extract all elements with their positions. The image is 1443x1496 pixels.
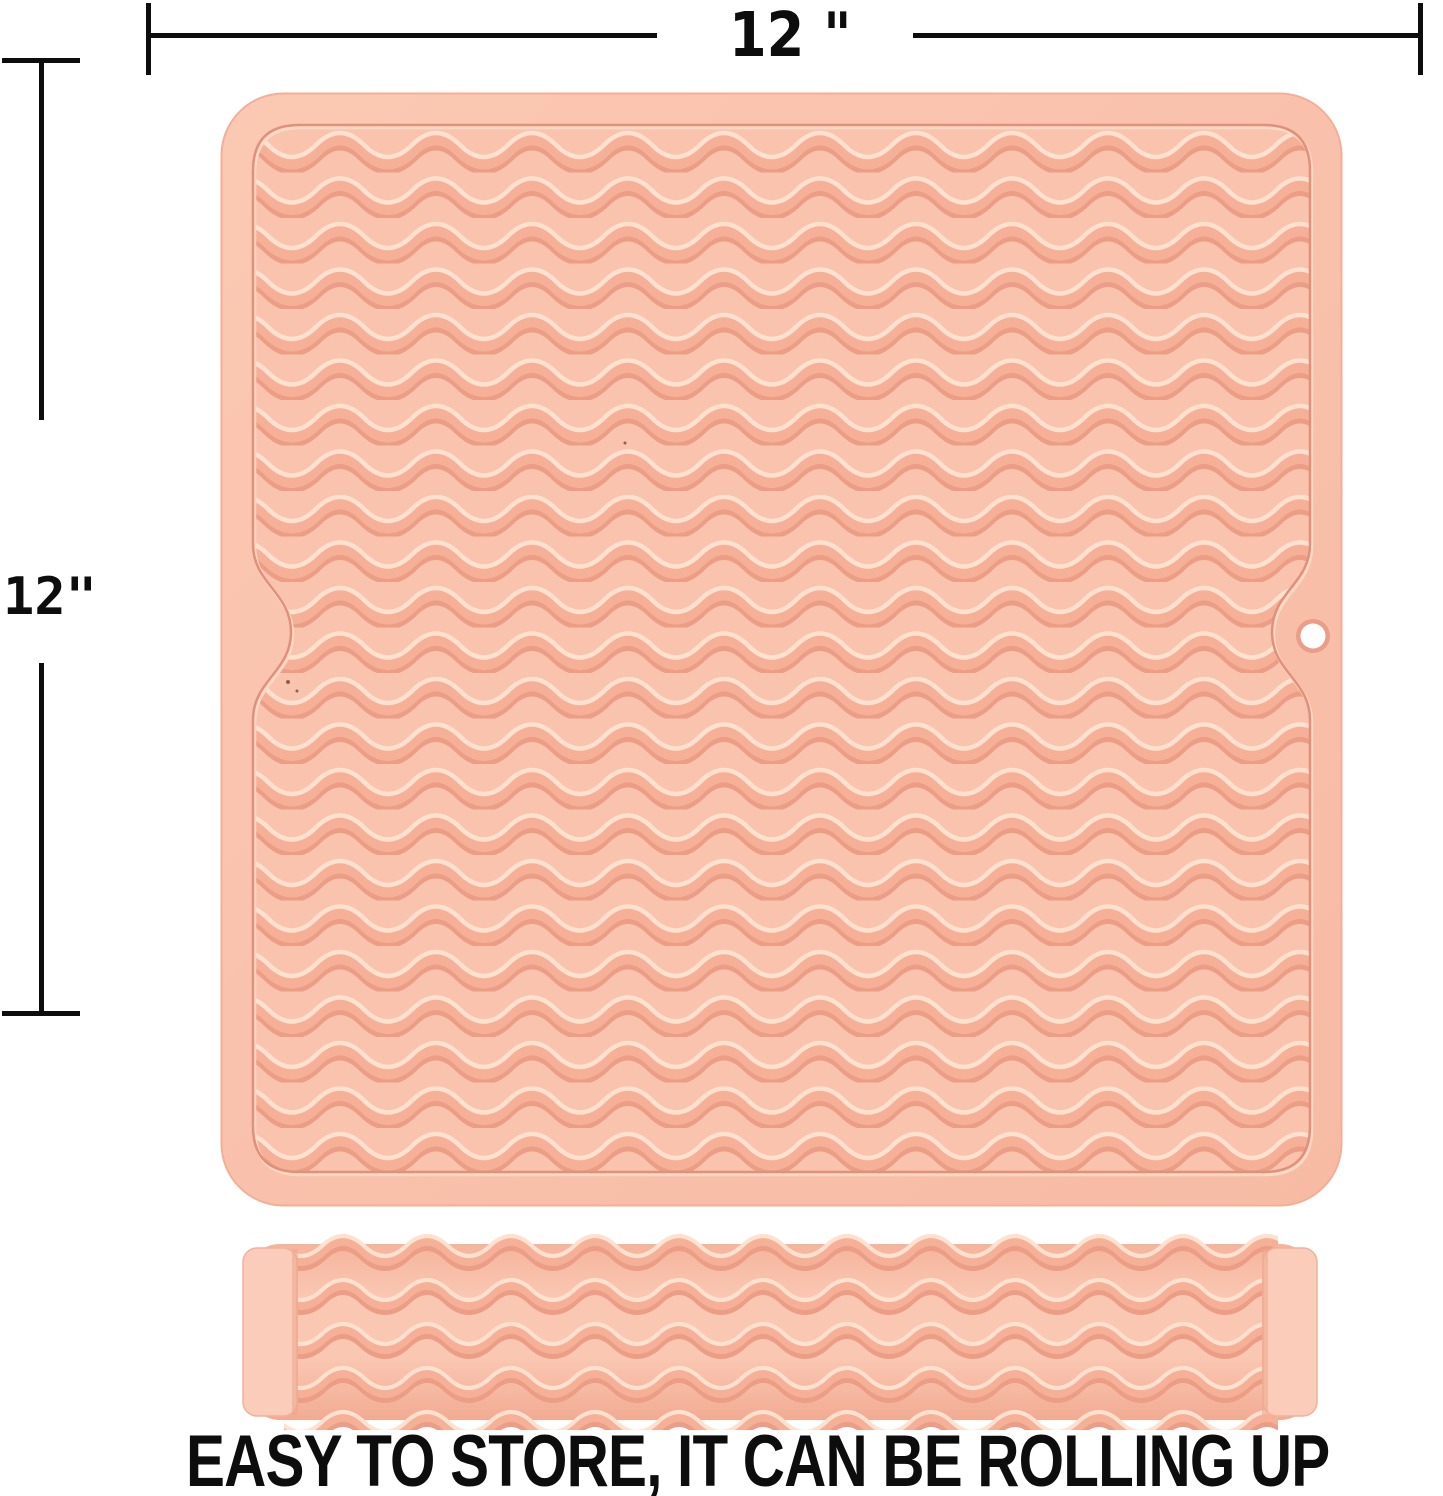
height-dimension-label: 12" xyxy=(0,566,102,628)
width-dim-line-right xyxy=(913,33,1421,38)
mat-wave-texture xyxy=(220,92,1343,1207)
drying-mat-image xyxy=(220,92,1343,1207)
height-dim-bottom-tick xyxy=(2,1011,80,1016)
width-dim-right-tick xyxy=(1418,3,1423,75)
mat-hanging-hole xyxy=(1296,619,1330,653)
product-image: 12 " 12" xyxy=(0,0,1443,1496)
roll-wave-texture xyxy=(284,1234,1278,1430)
width-dimension-label: 12 " xyxy=(729,0,843,71)
height-dim-line-top xyxy=(39,58,44,420)
caption-text: EASY TO STORE, IT CAN BE ROLLING UP xyxy=(186,1426,1329,1496)
width-dim-line-left xyxy=(149,33,657,38)
width-dim-left-tick xyxy=(146,3,151,75)
rolled-mat-image xyxy=(238,1234,1322,1430)
roll-left-end-cap xyxy=(243,1248,298,1416)
roll-right-end-cap xyxy=(1262,1248,1317,1416)
height-dim-line-bottom xyxy=(39,663,44,1013)
